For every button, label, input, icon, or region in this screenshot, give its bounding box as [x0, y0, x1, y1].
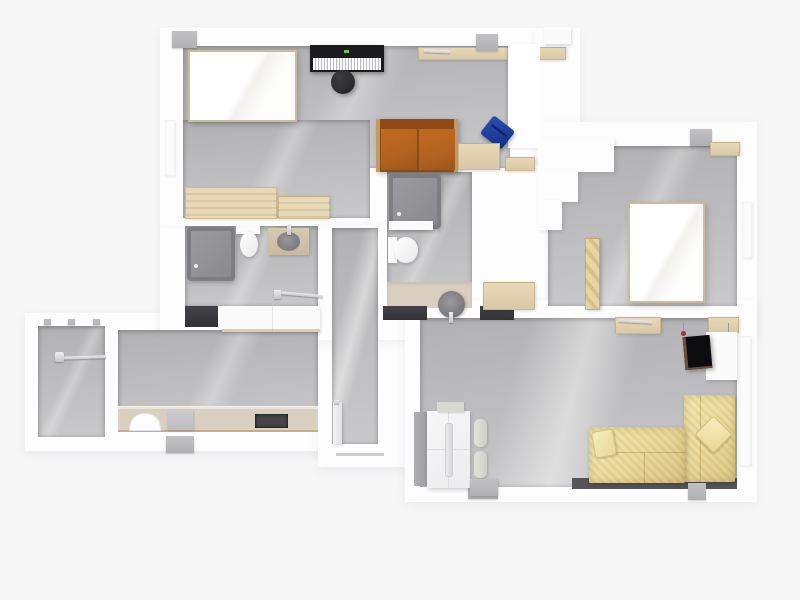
wall-trim-wood-bedroom2 [710, 142, 740, 156]
bath-mat-main [383, 306, 427, 320]
closet-step-2 [538, 170, 578, 202]
white-counter [222, 306, 320, 332]
vent-tab-top-white [544, 27, 571, 44]
wardrobe-side-panel [414, 412, 427, 486]
towel-roll-1 [474, 419, 487, 447]
closet-step-3 [538, 200, 562, 230]
bath-shelf [389, 221, 433, 230]
door-leaf [333, 402, 342, 444]
cooktop [255, 414, 288, 428]
wardrobe-strip [585, 238, 600, 310]
entry-threshold-line [336, 453, 384, 456]
bath-mat-small [185, 306, 218, 327]
desk-nook [483, 282, 535, 310]
balcony-notch-3 [93, 319, 100, 325]
loveseat-armrest-left [376, 119, 380, 172]
vent-tab-top-middle [476, 34, 498, 51]
loveseat-cushion-left [381, 129, 417, 170]
side-table-2 [505, 157, 535, 171]
wall-shelf-top-2 [538, 47, 566, 60]
bed-2 [628, 202, 705, 303]
window-marker-living-right [739, 336, 751, 466]
wardrobe-handle [445, 423, 453, 477]
sofa-body-seam-v [644, 452, 645, 483]
loveseat-orange [376, 119, 458, 172]
balcony-notch-2 [68, 319, 75, 325]
sofa-armrest-pillow [591, 428, 617, 458]
towel-rail-bracket [274, 290, 281, 299]
white-counter-edge [222, 329, 320, 332]
washbasin-small-tap [287, 224, 291, 235]
vent-tab-top-left [172, 31, 197, 48]
balcony-notch-1 [44, 319, 51, 325]
shower-small-dot [194, 264, 198, 268]
kitchen-appliance [167, 410, 193, 430]
vent-tab-living-bottom-2 [688, 483, 706, 500]
dresser-long [185, 187, 277, 219]
loveseat-cushion-right [419, 129, 455, 170]
floor-balcony [38, 326, 105, 437]
vent-tab-wardrobe [470, 479, 498, 496]
tv [683, 335, 713, 370]
wall-hook-red-1 [681, 331, 686, 336]
toilet-small-bowl [240, 232, 258, 257]
armchair-seat-line [491, 124, 507, 137]
washbasin-main-tap [449, 312, 453, 323]
window-marker-bedroom2-right [742, 202, 752, 258]
shower-small [187, 227, 235, 281]
piano [310, 45, 384, 72]
piano-keys [313, 58, 381, 70]
floor-plan [0, 0, 800, 600]
towel-roll-2 [474, 451, 487, 478]
dresser-short [278, 196, 330, 219]
side-table-1 [458, 143, 500, 170]
vent-tab-bedroom2 [690, 129, 712, 146]
double-bed [188, 50, 297, 122]
window-marker-bedroom-left [165, 120, 175, 176]
shower-drain-dot [397, 212, 401, 216]
toilet-main-bowl [394, 237, 418, 263]
vent-tab-kitchen [166, 436, 194, 453]
laundry-rail-hook [55, 352, 64, 362]
door-handle [334, 400, 339, 404]
wardrobe-white [427, 411, 470, 488]
wall-desk-2 [708, 317, 739, 333]
closet-step-1 [538, 138, 614, 172]
piano-stool [331, 70, 355, 94]
piano-led [344, 50, 349, 53]
wardrobe-top-box [437, 402, 464, 412]
